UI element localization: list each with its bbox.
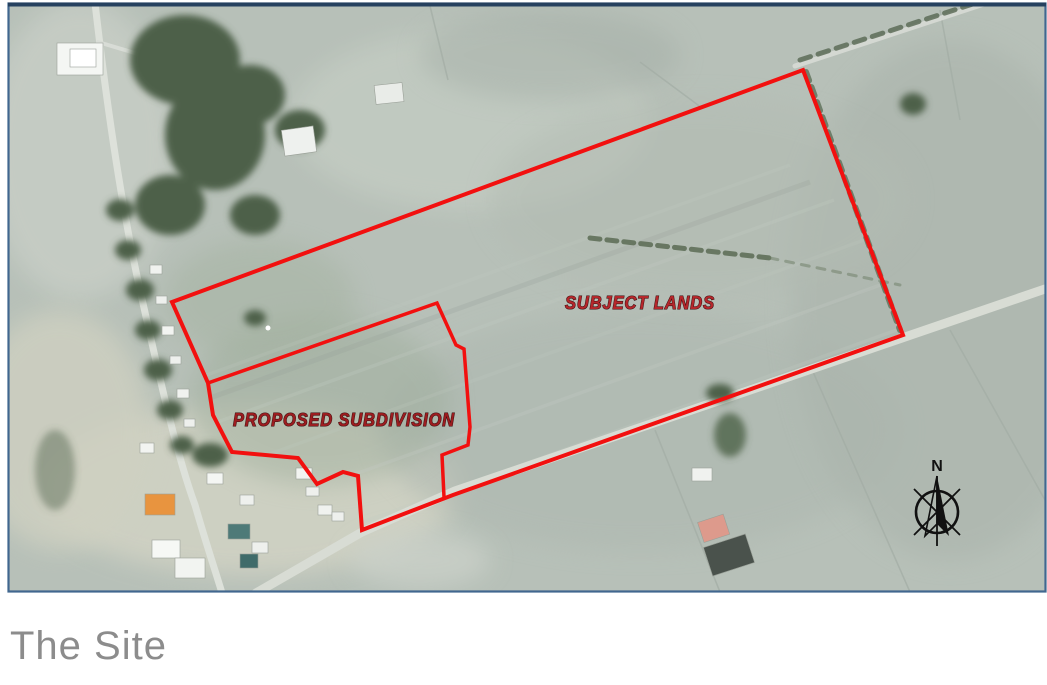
aerial-photo: SUBJECT LANDS PROPOSED SUBDIVISION N (0, 0, 1047, 595)
proposed-subdivision-label: PROPOSED SUBDIVISION (233, 410, 455, 430)
orange-roof-building (145, 494, 175, 515)
slide: SUBJECT LANDS PROPOSED SUBDIVISION N The… (0, 0, 1047, 685)
aerial-map: SUBJECT LANDS PROPOSED SUBDIVISION N (0, 0, 1047, 595)
teal-roof-building (228, 524, 250, 539)
page-caption: The Site (10, 622, 167, 670)
subject-lands-label: SUBJECT LANDS (565, 293, 715, 313)
map-content: SUBJECT LANDS PROPOSED SUBDIVISION N (0, 0, 1047, 595)
north-label: N (931, 458, 943, 475)
